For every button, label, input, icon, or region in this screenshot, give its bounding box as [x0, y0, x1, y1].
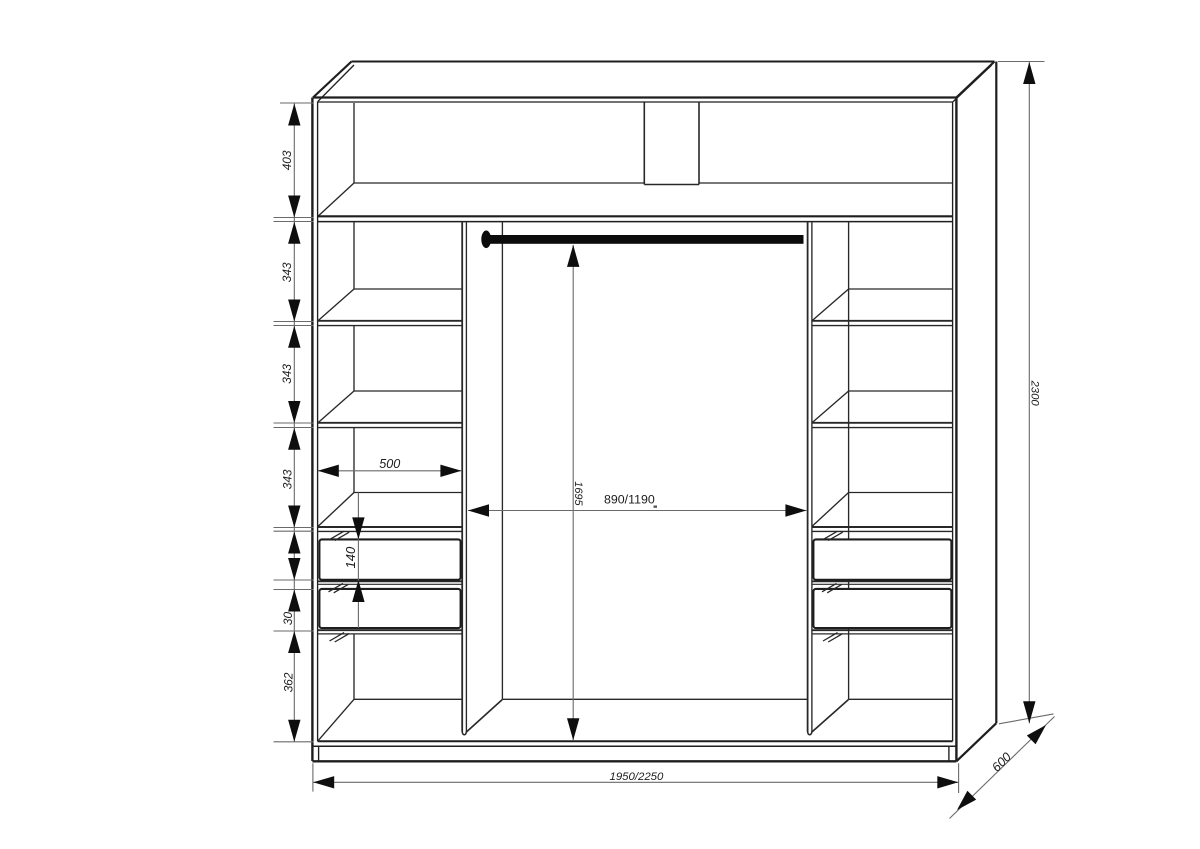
svg-text:30: 30: [281, 612, 295, 626]
svg-text:362: 362: [282, 672, 296, 692]
svg-text:1695: 1695: [572, 481, 584, 506]
svg-text:600: 600: [989, 750, 1014, 775]
svg-text:343: 343: [280, 469, 294, 489]
svg-text:1950/2250: 1950/2250: [610, 771, 665, 783]
svg-text:343: 343: [280, 262, 294, 282]
svg-text:2300: 2300: [1028, 380, 1040, 407]
svg-text:343: 343: [280, 364, 294, 384]
svg-text:403: 403: [280, 150, 294, 170]
svg-text:500: 500: [379, 457, 400, 471]
svg-text:890/1190: 890/1190: [604, 492, 655, 506]
svg-text:140: 140: [343, 546, 358, 568]
